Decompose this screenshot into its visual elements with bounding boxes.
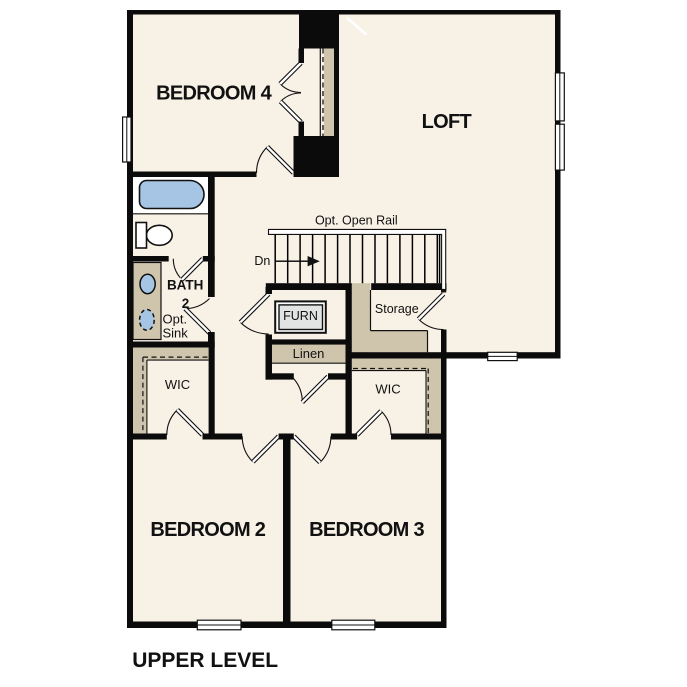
svg-text:UPPER LEVEL: UPPER LEVEL <box>132 649 278 672</box>
svg-text:BEDROOM 2: BEDROOM 2 <box>150 519 265 541</box>
svg-text:BEDROOM 3: BEDROOM 3 <box>309 519 424 541</box>
svg-text:WIC: WIC <box>375 382 400 397</box>
svg-text:BEDROOM 4: BEDROOM 4 <box>156 83 272 105</box>
svg-text:Opt. Open Rail: Opt. Open Rail <box>315 214 398 228</box>
svg-text:LOFT: LOFT <box>422 111 472 133</box>
svg-text:BATH: BATH <box>167 278 204 293</box>
svg-text:Dn: Dn <box>254 254 270 268</box>
svg-text:Linen: Linen <box>293 346 325 361</box>
svg-text:Sink: Sink <box>163 326 189 341</box>
svg-text:Opt.: Opt. <box>163 312 188 327</box>
svg-text:WIC: WIC <box>165 377 190 392</box>
svg-text:FURN: FURN <box>283 309 318 323</box>
svg-text:Storage: Storage <box>375 302 419 316</box>
